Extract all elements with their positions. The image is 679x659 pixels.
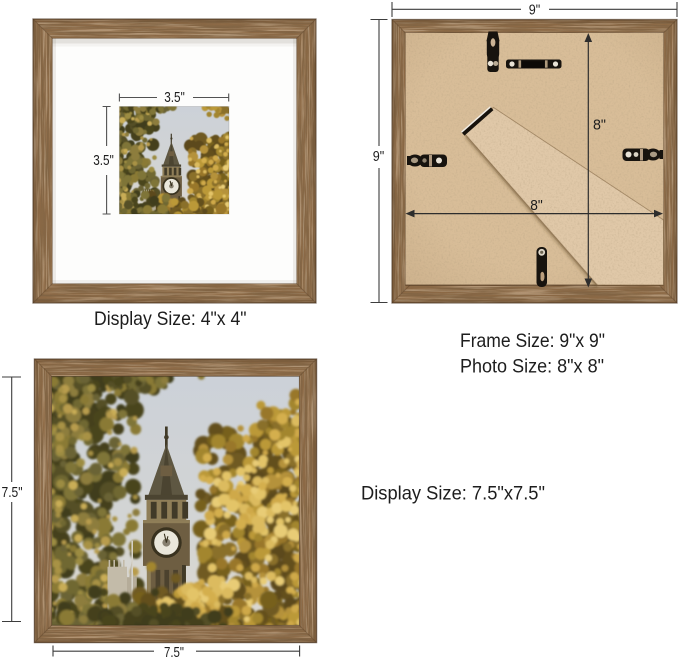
svg-text:3.5": 3.5" [93,153,114,169]
svg-text:Frame Size: 9"x 9": Frame Size: 9"x 9" [460,330,605,352]
svg-text:7.5": 7.5" [2,485,23,501]
svg-text:9": 9" [529,2,541,18]
svg-text:3.5": 3.5" [164,90,185,106]
svg-text:8": 8" [593,116,606,133]
svg-text:Display Size: 7.5"x7.5": Display Size: 7.5"x7.5" [361,483,545,505]
svg-text:Photo Size: 8"x 8": Photo Size: 8"x 8" [460,356,604,378]
svg-text:7.5": 7.5" [164,645,184,659]
svg-text:8": 8" [530,197,543,214]
svg-text:9": 9" [373,149,385,165]
svg-text:Display Size: 4"x 4": Display Size: 4"x 4" [94,308,247,330]
